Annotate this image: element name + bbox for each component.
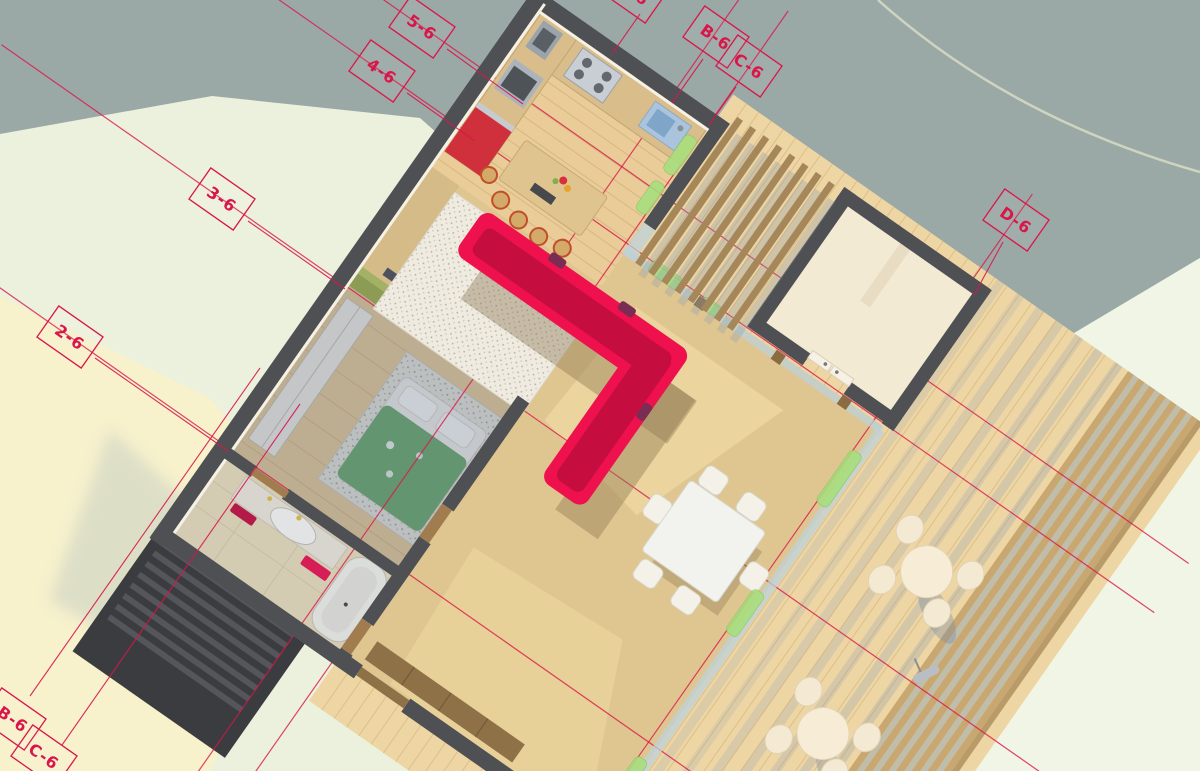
scene-svg: A-6 5-6 4-6 3-6 2-6 B-6 C-6 D-6 [0, 0, 1200, 771]
floorplan-render: A-6 5-6 4-6 3-6 2-6 B-6 C-6 D-6 [0, 0, 1200, 771]
